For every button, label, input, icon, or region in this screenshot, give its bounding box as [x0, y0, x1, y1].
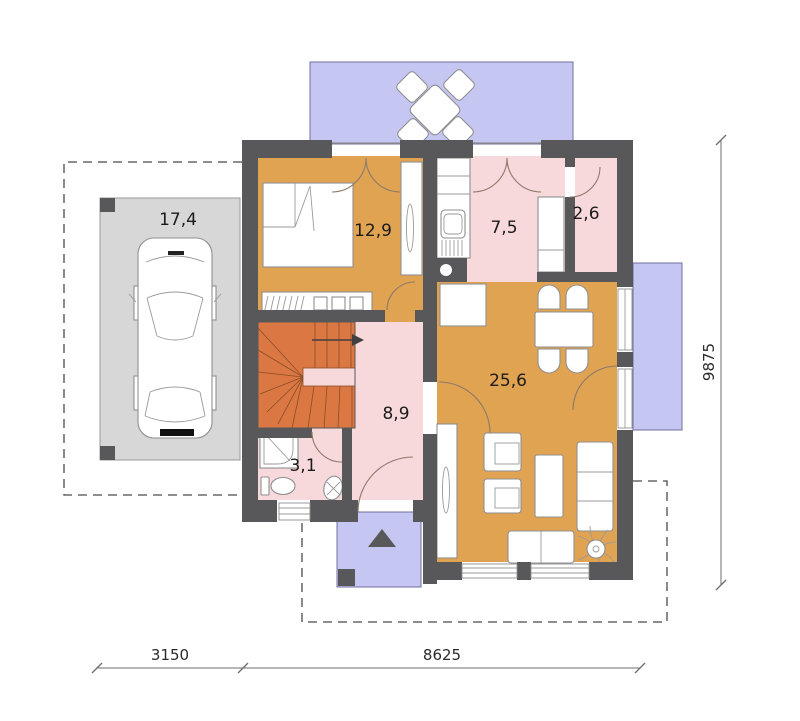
window-east-lower: [618, 369, 632, 428]
bathroom-area-label: 3,1: [289, 456, 316, 476]
bedroom-area-label: 12,9: [354, 221, 392, 241]
dining-chair: [538, 349, 560, 373]
coffee-table: [535, 455, 563, 517]
dining-chair: [538, 285, 560, 309]
kitchen-area-label: 7,5: [490, 218, 517, 238]
living-area-label: 25,6: [489, 371, 527, 391]
stove: [437, 258, 467, 282]
carport-area-label: 17,4: [159, 210, 197, 230]
dining-chair: [566, 349, 588, 373]
bed: [263, 183, 353, 267]
dimension-label-3150: 3150: [151, 646, 189, 664]
carport-post: [100, 198, 115, 212]
car: [129, 238, 221, 438]
floor-plan-drawing: 17,4 12,9 7,5 2,6 25,6 8,9 3,1 3150 8625…: [0, 0, 800, 721]
dimension-label-8625: 8625: [423, 646, 461, 664]
dining-table: [535, 312, 593, 347]
dimension-bottom: [92, 663, 645, 673]
toilet: [261, 477, 295, 495]
porch-post: [338, 569, 355, 586]
fridge-cabinet: [440, 284, 486, 326]
kitchen-counter: [437, 158, 470, 258]
tv-cabinet: [437, 424, 457, 558]
dining-chair: [566, 285, 588, 309]
terrace-right: [633, 263, 682, 430]
pantry-area-label: 2,6: [572, 204, 599, 224]
carport-post: [100, 446, 115, 460]
hall-area-label: 8,9: [382, 404, 409, 424]
dimension-label-9875: 9875: [700, 343, 718, 381]
bedroom-cabinet: [401, 162, 422, 275]
stair-landing-void: [303, 368, 355, 386]
pantry-shelf: [538, 197, 564, 272]
window-bathroom: [279, 503, 310, 520]
armchair: [484, 433, 521, 471]
window-living-right: [531, 564, 589, 578]
floor-plan-canvas: 17,4 12,9 7,5 2,6 25,6 8,9 3,1 3150 8625…: [0, 0, 800, 721]
armchair: [484, 479, 521, 513]
window-east-upper: [618, 289, 632, 350]
window-living-left: [462, 564, 517, 578]
